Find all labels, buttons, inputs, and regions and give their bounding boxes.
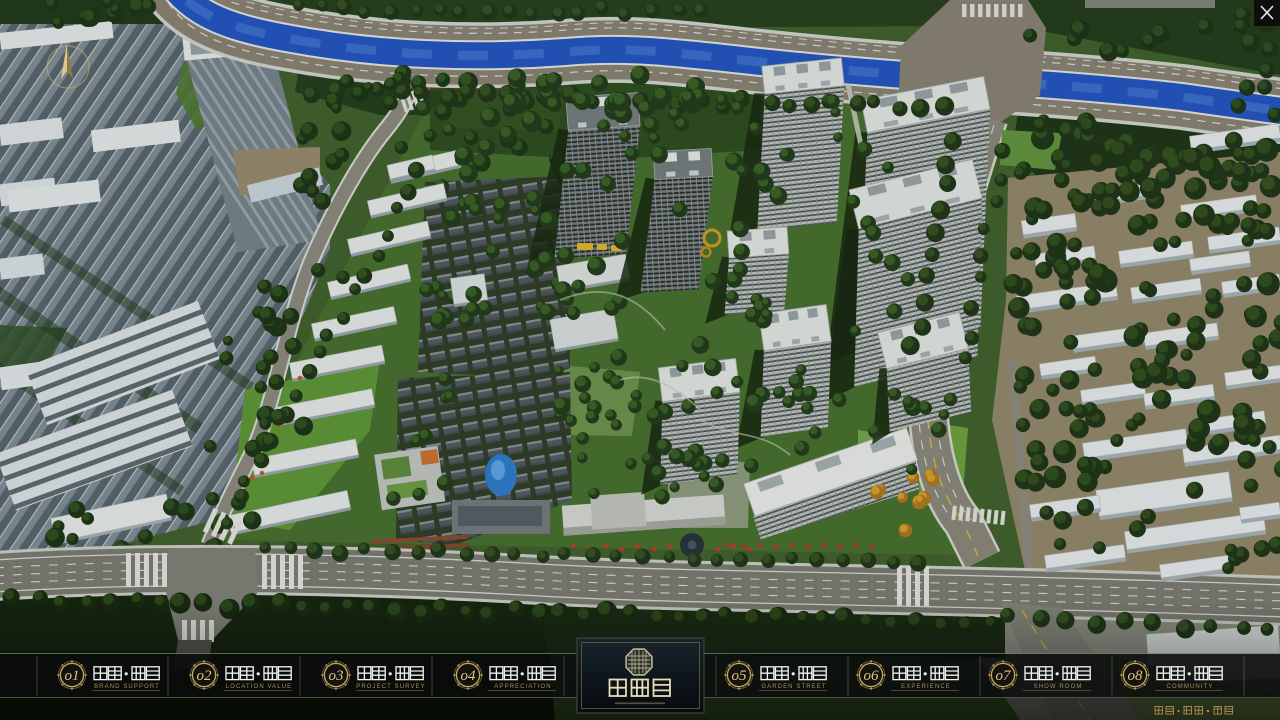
svg-text:EXPERIENCE: EXPERIENCE: [901, 684, 951, 690]
svg-text:o4: o4: [461, 668, 477, 684]
svg-text:APPRECIATION: APPRECIATION: [494, 684, 551, 690]
svg-text:o1: o1: [65, 668, 80, 684]
svg-text:COMMUNITY: COMMUNITY: [1167, 684, 1214, 690]
svg-text:GARDEN STREET: GARDEN STREET: [761, 684, 826, 690]
svg-text:BRAND SUPPORT: BRAND SUPPORT: [94, 684, 160, 690]
svg-text:o5: o5: [732, 668, 748, 684]
svg-text:o2: o2: [197, 668, 213, 684]
svg-text:o7: o7: [996, 668, 1013, 684]
svg-text:o3: o3: [329, 668, 344, 684]
svg-text:PROJECT SURVEY: PROJECT SURVEY: [356, 684, 426, 690]
svg-text:o8: o8: [1128, 668, 1144, 684]
svg-text:LOCATION VALUE: LOCATION VALUE: [226, 684, 293, 690]
svg-text:o6: o6: [864, 668, 880, 684]
svg-text:SHOW ROOM: SHOW ROOM: [1034, 684, 1083, 690]
